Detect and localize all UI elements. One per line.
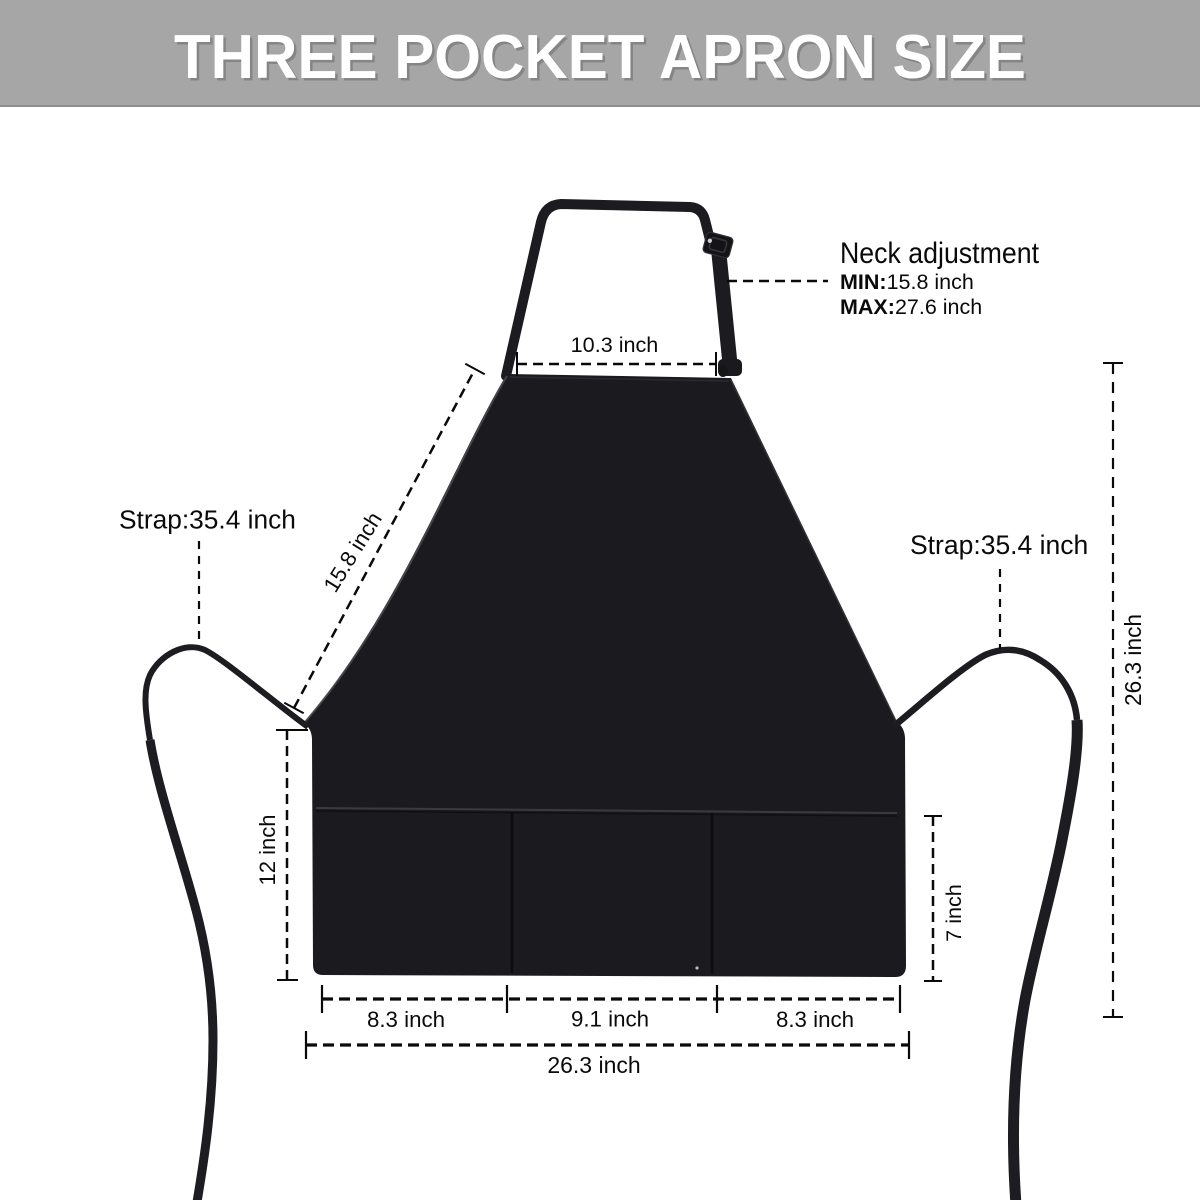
svg-text:MAX:27.6 inch: MAX:27.6 inch bbox=[840, 295, 982, 319]
svg-text:12 inch: 12 inch bbox=[255, 815, 280, 886]
svg-text:7 inch: 7 inch bbox=[941, 884, 966, 942]
svg-text:10.3 inch: 10.3 inch bbox=[571, 332, 659, 357]
svg-text:Strap:35.4 inch: Strap:35.4 inch bbox=[910, 530, 1088, 560]
svg-text:Neck adjustment: Neck adjustment bbox=[840, 237, 1039, 270]
svg-text:MIN:15.8 inch: MIN:15.8 inch bbox=[840, 270, 974, 294]
svg-text:26.3 inch: 26.3 inch bbox=[547, 1052, 640, 1078]
svg-text:THREE POCKET APRON SIZE: THREE POCKET APRON SIZE bbox=[174, 23, 1026, 92]
svg-text:26.3 inch: 26.3 inch bbox=[1120, 614, 1146, 706]
svg-text:8.3 inch: 8.3 inch bbox=[367, 1007, 445, 1032]
svg-text:9.1 inch: 9.1 inch bbox=[571, 1007, 649, 1032]
svg-text:8.3 inch: 8.3 inch bbox=[776, 1007, 854, 1032]
svg-text:Strap:35.4 inch: Strap:35.4 inch bbox=[119, 505, 296, 535]
